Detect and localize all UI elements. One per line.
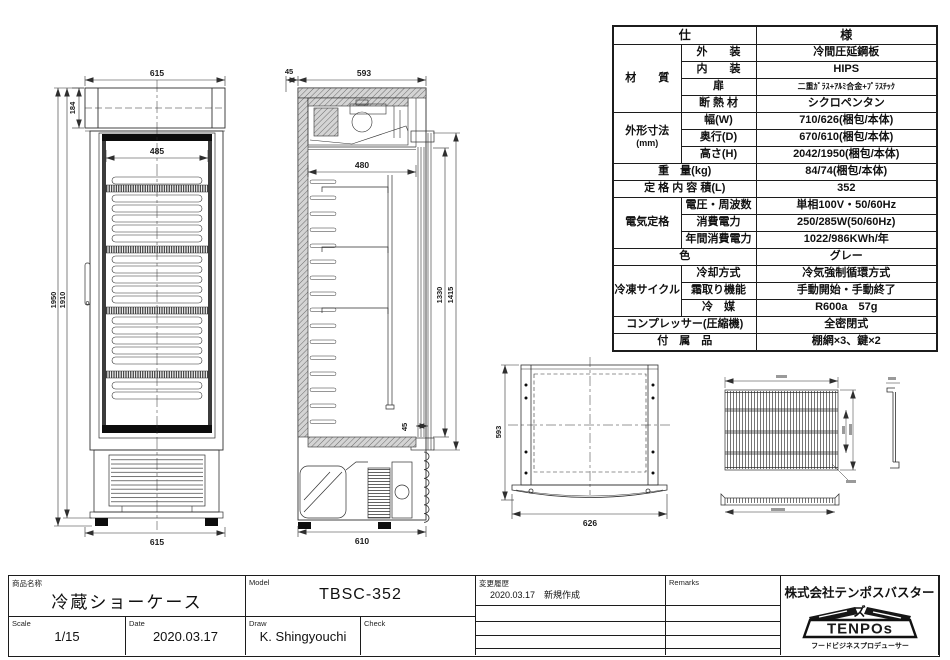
spec-title-left: 仕 <box>613 26 756 45</box>
scale-value: 1/15 <box>9 629 125 644</box>
spec-cooling-value: 冷気強制循環方式 <box>756 266 937 283</box>
revision-rule <box>476 635 781 636</box>
svg-text:626: 626 <box>583 518 597 528</box>
dim-side-door-heights: 1330 1415 <box>433 133 460 450</box>
spec-height-label: 高さ(H) <box>681 147 756 164</box>
dim-side-top-depth: 593 <box>298 68 426 86</box>
drawing-sheet: 485 <box>0 0 950 660</box>
company-cell: 株式会社テンポスバスターズ TENPOs フードビジネスプロデューサー <box>781 576 939 655</box>
draw-value: K. Shingyouchi <box>246 629 360 644</box>
spec-exterior-value: 冷間圧延鋼板 <box>756 45 937 62</box>
spec-insulation-value: シクロペンタン <box>756 96 937 113</box>
glass-door <box>411 131 434 450</box>
spec-voltage-value: 単相100V・50/60Hz <box>756 198 937 215</box>
spec-compressor-value: 全密閉式 <box>756 317 937 334</box>
spec-power-label: 消費電力 <box>681 215 756 232</box>
plan-rail-bolts <box>525 384 655 475</box>
spec-weight-value: 84/74(梱包/本体) <box>756 164 937 181</box>
spec-compressor-label: コンプレッサー(圧縮機) <box>613 317 756 334</box>
svg-text:593: 593 <box>494 426 503 439</box>
date-cell: Date 2020.03.17 <box>126 617 246 655</box>
spec-title-right: 様 <box>756 26 937 45</box>
foot-right <box>205 518 218 526</box>
svg-text:593: 593 <box>357 68 371 78</box>
svg-text:1910: 1910 <box>58 292 67 309</box>
spec-defrost-label: 霜取り機能 <box>681 283 756 300</box>
dim-plan-width: 626 <box>512 494 667 528</box>
evaporator-unit <box>308 98 416 147</box>
svg-text:1330: 1330 <box>435 287 444 304</box>
draw-label: Draw <box>249 619 267 628</box>
spec-height-value: 2042/1950(梱包/本体) <box>756 147 937 164</box>
revision-rule <box>476 621 781 622</box>
dim-front-bottom-width: 615 <box>85 527 225 547</box>
spec-power-value: 250/285W(50/60Hz) <box>756 215 937 232</box>
dim-side-bottom-depth: 610 <box>298 526 426 546</box>
dim-front-canopy-height: 184 <box>68 88 84 128</box>
date-label: Date <box>129 619 145 628</box>
spec-door-label: 扉 <box>681 79 756 96</box>
svg-text:184: 184 <box>68 101 77 114</box>
spec-table: 仕 様 材 質 外 装 冷間圧延鋼板 内 装 HIPS 扉 二重ｶﾞﾗｽ+ｱﾙﾐ… <box>612 25 938 352</box>
dim-front-top-width: 615 <box>85 68 225 86</box>
svg-text:1950: 1950 <box>49 292 58 309</box>
spec-cycle-label: 冷凍サイクル <box>613 266 681 317</box>
dim-side-back-gap: 45 <box>285 67 298 92</box>
svg-text:45: 45 <box>285 67 293 76</box>
svg-text:610: 610 <box>355 536 369 546</box>
remarks-label: Remarks <box>669 578 699 587</box>
spec-voltage-label: 電圧・周波数 <box>681 198 756 215</box>
spec-exterior-label: 外 装 <box>681 45 756 62</box>
spec-electric-label: 電気定格 <box>613 198 681 249</box>
dim-plan-depth: 593 <box>494 365 519 500</box>
spec-capacity-label: 定 格 内 容 積(L) <box>613 181 756 198</box>
spec-depth-label: 奥行(D) <box>681 130 756 147</box>
spec-door-value: 二重ｶﾞﾗｽ+ｱﾙﾐ合金+ﾌﾟﾗｽﾁｯｸ <box>756 79 937 96</box>
plan-door <box>512 485 667 498</box>
date-value: 2020.03.17 <box>126 629 245 644</box>
spec-insulation-label: 断 熱 材 <box>681 96 756 113</box>
spec-dims-label: 外形寸法 (mm) <box>613 113 681 164</box>
spec-refrigerant-value: R600a 57g <box>756 300 937 317</box>
spec-material-label: 材 質 <box>613 45 681 113</box>
spec-width-label: 幅(W) <box>681 113 756 130</box>
spec-interior-value: HIPS <box>756 62 937 79</box>
front-view: 485 <box>49 68 225 547</box>
history-entry: 2020.03.17 新規作成 <box>490 588 580 601</box>
product-name-cell: 商品名称 冷蔵ショーケース <box>9 576 246 617</box>
compressor-unit <box>298 452 429 529</box>
shelf-fins <box>310 180 336 424</box>
svg-text:45: 45 <box>400 423 409 431</box>
spec-weight-label: 重 量(kg) <box>613 164 756 181</box>
plan-view: 593 626 <box>494 357 672 528</box>
spec-color-value: グレー <box>756 249 937 266</box>
spec-interior-label: 内 装 <box>681 62 756 79</box>
svg-text:480: 480 <box>355 160 369 170</box>
spec-refrigerant-label: 冷 媒 <box>681 300 756 317</box>
spec-capacity-value: 352 <box>756 181 937 198</box>
svg-text:1415: 1415 <box>446 287 455 304</box>
spec-color-label: 色 <box>613 249 756 266</box>
product-name-value: 冷蔵ショーケース <box>9 588 245 613</box>
shelf-side-profile <box>886 377 900 468</box>
shelf-edge-view <box>721 494 839 512</box>
spec-depth-value: 670/610(梱包/本体) <box>756 130 937 147</box>
door-handle <box>85 263 90 305</box>
svg-text:615: 615 <box>150 68 164 78</box>
check-cell: Check <box>361 617 476 655</box>
model-value: TBSC-352 <box>246 586 475 604</box>
spec-annual-label: 年間消費電力 <box>681 232 756 249</box>
revision-rule <box>476 648 781 649</box>
spec-cooling-label: 冷却方式 <box>681 266 756 283</box>
title-block: 商品名称 冷蔵ショーケース Model TBSC-352 Scale 1/15 … <box>8 575 940 657</box>
remarks-cell: Remarks <box>666 576 781 655</box>
logo-tagline: フードビジネスプロデューサー <box>811 641 909 650</box>
scale-label: Scale <box>12 619 31 628</box>
tenpos-logo: TENPOs フードビジネスプロデューサー <box>795 604 925 652</box>
foot-left <box>95 518 108 526</box>
spec-accessories-value: 棚網×3、鍵×2 <box>756 334 937 352</box>
model-cell: Model TBSC-352 <box>246 576 476 617</box>
revision-rule <box>476 605 781 606</box>
side-body <box>298 88 426 520</box>
draw-cell: Draw K. Shingyouchi <box>246 617 361 655</box>
shelf-grid-detail <box>721 375 900 512</box>
scale-cell: Scale 1/15 <box>9 617 126 655</box>
history-cell: 変更履歴 2020.03.17 新規作成 <box>476 576 666 655</box>
spec-annual-value: 1022/986KWh/年 <box>756 232 937 249</box>
svg-text:615: 615 <box>150 537 164 547</box>
spec-width-value: 710/626(梱包/本体) <box>756 113 937 130</box>
check-label: Check <box>364 619 385 628</box>
dim-front-heights: 1950 1910 <box>49 88 92 526</box>
spec-accessories-label: 付 属 品 <box>613 334 756 352</box>
spec-defrost-value: 手動開始・手動終了 <box>756 283 937 300</box>
logo-text: TENPOs <box>827 621 893 638</box>
dim-side-inner-depth: 480 <box>308 160 416 177</box>
side-view: 480 <box>285 67 460 546</box>
